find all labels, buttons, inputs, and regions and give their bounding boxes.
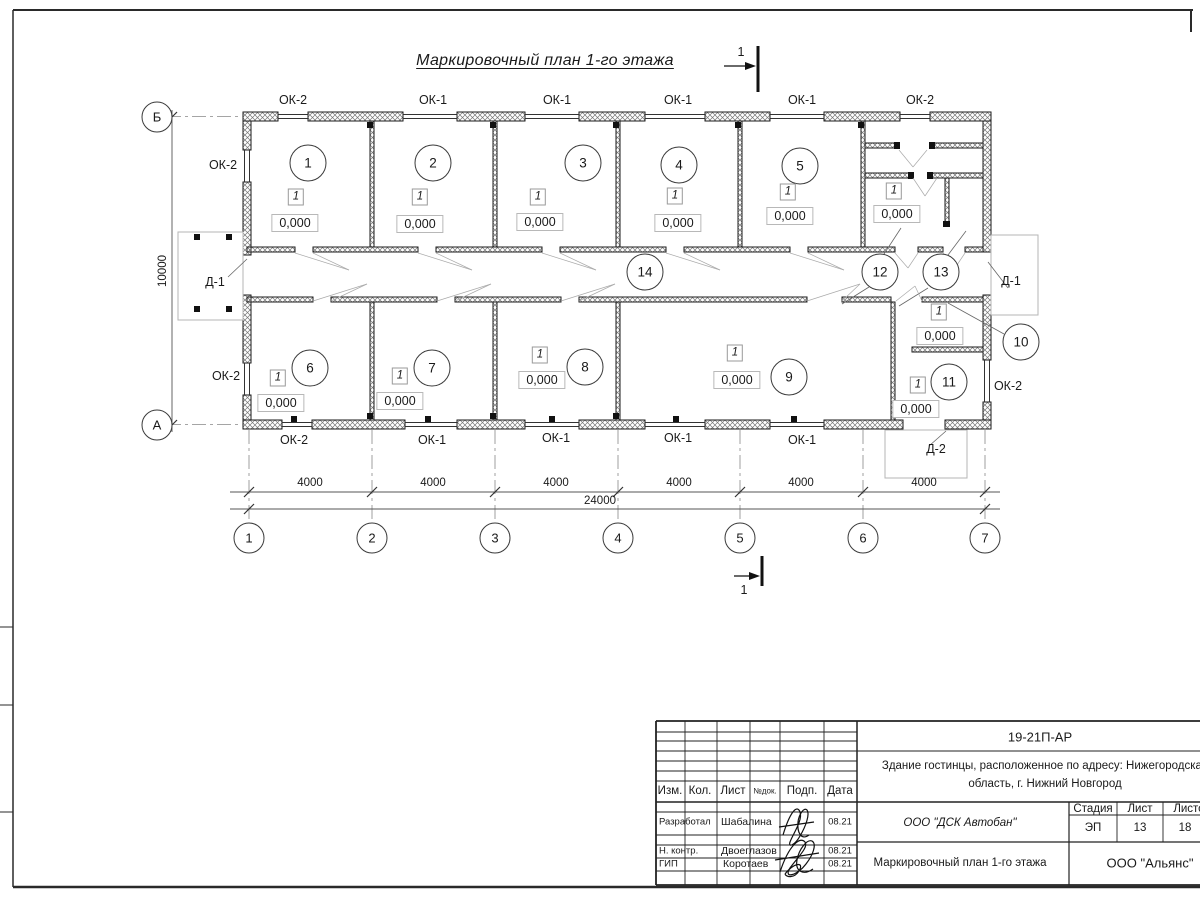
door-label: Д-2 <box>926 442 946 456</box>
room-number-circle: 13 <box>923 254 960 291</box>
person-name: Коротаев <box>723 858 768 870</box>
room-number-circle: 5 <box>782 148 819 185</box>
dimension-label: 24000 <box>584 495 616 507</box>
column-header-podp: Подп. <box>787 785 818 797</box>
room-level-mark: 0,000 <box>518 371 565 389</box>
column-header-kol: Кол. <box>689 785 712 797</box>
room-number-circle: 8 <box>567 349 604 386</box>
room-type-mark: 1 <box>780 184 796 201</box>
axis-circle: 4 <box>603 523 634 554</box>
window-label: ОК-1 <box>419 93 447 107</box>
room-type-mark: 1 <box>532 347 548 364</box>
door-label: Д-1 <box>205 275 225 289</box>
dimension-label: 4000 <box>911 477 937 489</box>
room-level-mark: 0,000 <box>873 205 920 223</box>
sheets-value: 18 <box>1179 822 1192 834</box>
room-type-mark: 1 <box>270 370 286 387</box>
room-number-circle: 9 <box>771 359 808 396</box>
dimension-label: 4000 <box>420 477 446 489</box>
room-level-mark: 0,000 <box>271 214 318 232</box>
window-label: ОК-1 <box>542 431 570 445</box>
dimension-label: 4000 <box>543 477 569 489</box>
room-level-mark: 0,000 <box>892 400 939 418</box>
sheet-value: 13 <box>1134 822 1147 834</box>
window-label: ОК-1 <box>543 93 571 107</box>
role-label: Разработал <box>659 817 711 828</box>
room-type-mark: 1 <box>667 188 683 205</box>
room-level-mark: 0,000 <box>376 392 423 410</box>
dimension-label: 4000 <box>297 477 323 489</box>
room-type-mark: 1 <box>530 189 546 206</box>
column-header-data: Дата <box>827 785 852 797</box>
window-label: ОК-2 <box>209 158 237 172</box>
sheets-header: Листов <box>1173 803 1200 815</box>
role-label: Н. контр. <box>659 846 698 857</box>
axis-circle: А <box>142 410 173 441</box>
room-level-mark: 0,000 <box>257 394 304 412</box>
date-value: 08.21 <box>828 817 852 828</box>
window-label: ОК-1 <box>788 93 816 107</box>
section-label: 1 <box>738 45 745 59</box>
window-label: ОК-2 <box>906 93 934 107</box>
window-label: ОК-1 <box>418 433 446 447</box>
room-type-mark: 1 <box>886 183 902 200</box>
axis-circle: 3 <box>480 523 511 554</box>
company-name: ООО "Альянс" <box>1107 856 1194 871</box>
window-label: ОК-1 <box>664 431 692 445</box>
room-number-circle: 12 <box>862 254 899 291</box>
axis-circle: Б <box>142 102 173 133</box>
column-header-izm: Изм. <box>658 785 683 797</box>
room-number-circle: 6 <box>292 350 329 387</box>
room-number-circle: 7 <box>414 350 451 387</box>
role-label: ГИП <box>659 859 678 870</box>
room-type-mark: 1 <box>392 368 408 385</box>
room-level-mark: 0,000 <box>916 327 963 345</box>
person-name: Двоеглазов <box>721 845 777 857</box>
axis-circle: 5 <box>725 523 756 554</box>
date-value: 08.21 <box>828 846 852 857</box>
stage-value: ЭП <box>1085 822 1102 834</box>
stage-header: Стадия <box>1073 803 1112 815</box>
date-value: 08.21 <box>828 859 852 870</box>
room-level-mark: 0,000 <box>516 213 563 231</box>
room-level-mark: 0,000 <box>713 371 760 389</box>
column-header-list: Лист <box>721 785 746 797</box>
room-number-circle: 10 <box>1003 324 1040 361</box>
room-type-mark: 1 <box>412 189 428 206</box>
axis-circle: 7 <box>970 523 1001 554</box>
room-level-mark: 0,000 <box>654 214 701 232</box>
person-name: Шабалина <box>721 816 772 828</box>
room-type-mark: 1 <box>910 377 926 394</box>
organization-name: ООО "ДСК Автобан" <box>903 817 1016 829</box>
project-code: 19-21П-АР <box>1008 730 1072 745</box>
window-label: ОК-1 <box>664 93 692 107</box>
project-name-line2: область, г. Нижний Новгород <box>968 778 1121 790</box>
section-label: 1 <box>741 583 748 597</box>
room-number-circle: 1 <box>290 145 327 182</box>
dimension-label: 4000 <box>788 477 814 489</box>
sheet-header: Лист <box>1128 803 1153 815</box>
section-marks <box>724 46 762 586</box>
dimension-label: 10000 <box>157 255 169 287</box>
door-label: Д-1 <box>1001 274 1021 288</box>
axis-circle: 1 <box>234 523 265 554</box>
axis-circle: 2 <box>357 523 388 554</box>
signature <box>775 809 819 877</box>
column-header-ndok: №док. <box>753 787 776 796</box>
window-label: ОК-2 <box>994 379 1022 393</box>
room-type-mark: 1 <box>288 189 304 206</box>
room-number-circle: 2 <box>415 145 452 182</box>
room-level-mark: 0,000 <box>396 215 443 233</box>
room-type-mark: 1 <box>931 304 947 321</box>
room-number-circle: 14 <box>627 254 664 291</box>
room-number-circle: 11 <box>931 364 968 401</box>
room-level-mark: 0,000 <box>766 207 813 225</box>
window-label: ОК-2 <box>212 369 240 383</box>
sheet-frame <box>0 10 1200 887</box>
drawing-main-title: Маркировочный план 1-го этажа <box>416 52 674 70</box>
window-label: ОК-2 <box>280 433 308 447</box>
project-name-line1: Здание гостинцы, расположенное по адресу… <box>882 760 1200 772</box>
room-type-mark: 1 <box>727 345 743 362</box>
window-label: ОК-1 <box>788 433 816 447</box>
dimension-label: 4000 <box>666 477 692 489</box>
room-number-circle: 3 <box>565 145 602 182</box>
axis-circle: 6 <box>848 523 879 554</box>
window-label: ОК-2 <box>279 93 307 107</box>
room-number-circle: 4 <box>661 147 698 184</box>
sheet-title: Маркировочный план 1-го этажа <box>874 857 1047 869</box>
